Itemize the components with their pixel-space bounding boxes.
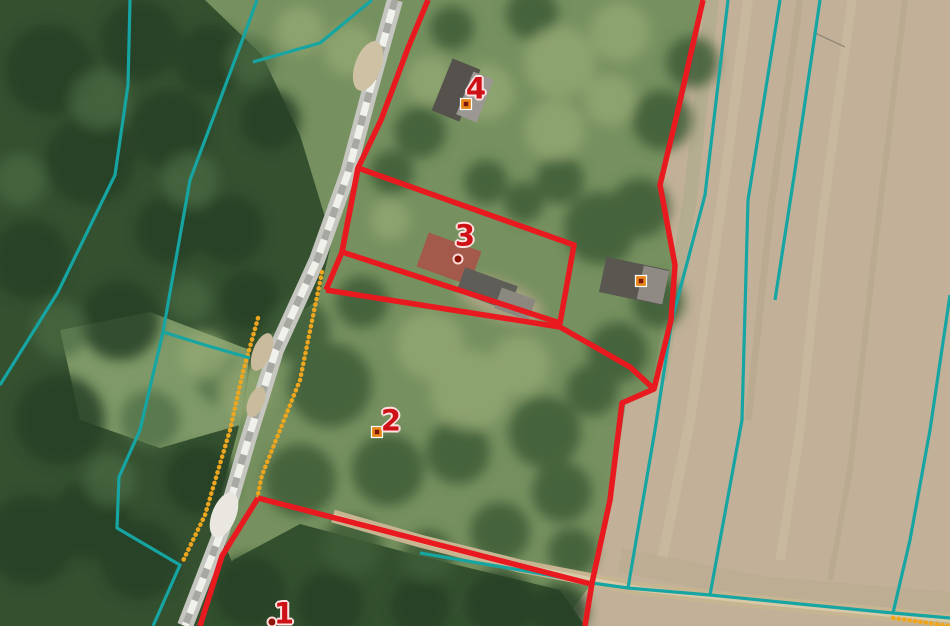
aerial-map-canvas[interactable]: 1 2 3 4 [0, 0, 950, 626]
address-marker-east-building[interactable] [636, 276, 647, 287]
parcel-label-1[interactable]: 1 [274, 600, 294, 626]
address-marker-3[interactable] [454, 255, 463, 264]
parcel-label-4[interactable]: 4 [466, 75, 486, 104]
parcel-label-3[interactable]: 3 [455, 222, 475, 251]
parcel-label-2[interactable]: 2 [381, 407, 401, 436]
